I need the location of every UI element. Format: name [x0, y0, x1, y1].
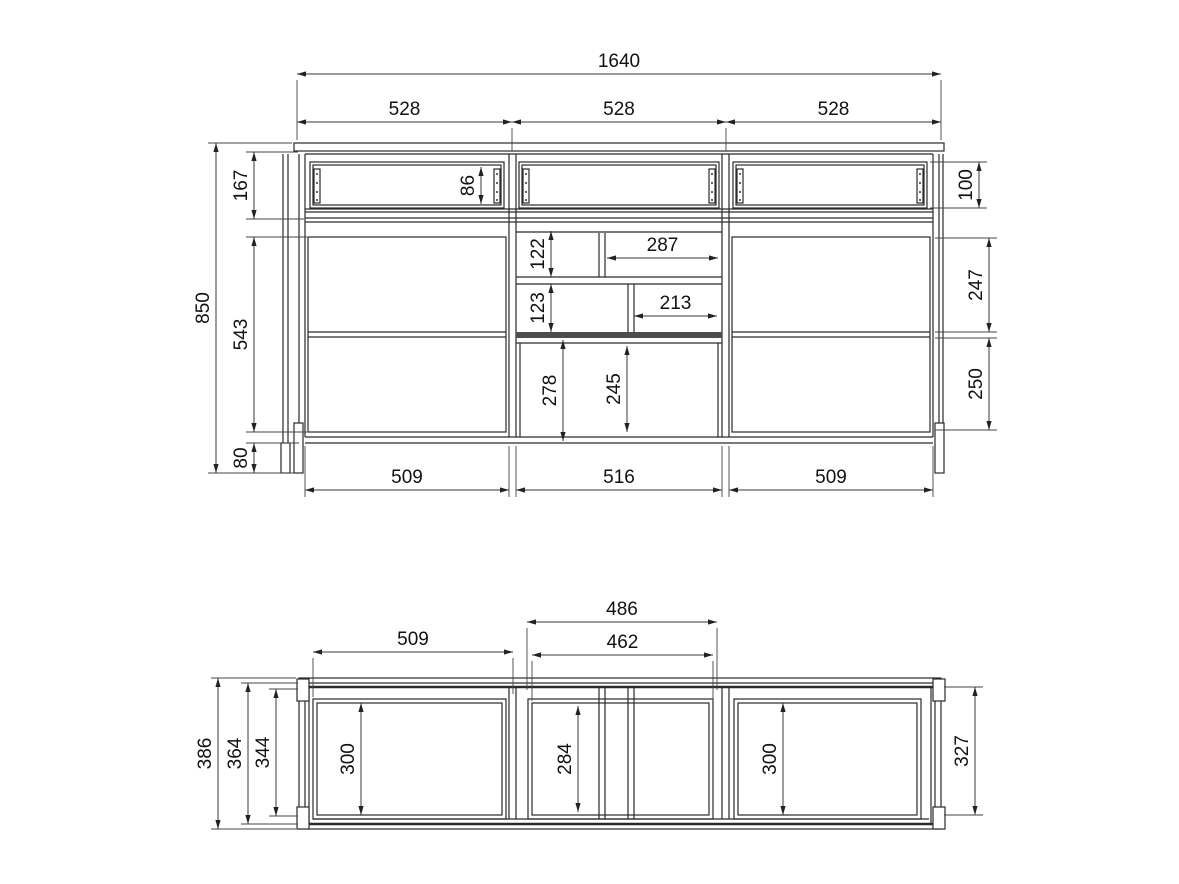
arrowhead: [512, 119, 521, 124]
dimension-label: 543: [231, 319, 252, 351]
arrowhead: [213, 143, 218, 152]
dim-386: 386: [195, 678, 221, 829]
arrowhead: [273, 689, 278, 698]
shelf-edge-band: [516, 332, 722, 338]
arrowhead: [708, 619, 717, 624]
dim-509: 509: [305, 467, 509, 493]
dimension-label: 850: [193, 292, 214, 324]
dimension-label: 327: [952, 735, 973, 767]
drawer-front-right: [733, 162, 927, 208]
arrowhead: [245, 815, 250, 824]
plan-view: [297, 678, 945, 829]
dimension-label: 284: [555, 743, 576, 775]
arrowhead: [532, 652, 541, 657]
dimension-label: 245: [604, 373, 625, 405]
door-right: [732, 237, 930, 432]
dim-528: 528: [512, 99, 726, 125]
arrowhead: [548, 323, 553, 332]
leg-top-left: [297, 679, 309, 701]
dim-1640: 1640: [297, 51, 941, 77]
leg-bottom-left: [297, 807, 309, 829]
furniture-technical-drawing: 1640528528528850167543808610024725012228…: [0, 0, 1179, 884]
dimension-label: 86: [458, 175, 479, 196]
arrowhead: [704, 652, 713, 657]
arrowhead: [500, 487, 509, 492]
dimension-label: 278: [540, 375, 561, 407]
dimension-label: 462: [607, 632, 639, 653]
dimension-label: 250: [966, 368, 987, 400]
arrowhead: [932, 119, 941, 124]
dimension-label: 509: [815, 467, 847, 488]
arrowhead: [548, 268, 553, 277]
arrowhead: [726, 119, 735, 124]
dim-364: 364: [225, 683, 251, 824]
arrowhead: [273, 807, 278, 816]
dimension-label: 213: [660, 293, 692, 314]
arrowhead: [305, 487, 314, 492]
dim-462: 462: [532, 632, 713, 658]
dimension-label: 287: [647, 235, 679, 256]
dimension-label: 528: [389, 99, 421, 120]
arrowhead: [986, 421, 991, 430]
arrowhead: [516, 487, 525, 492]
arrowhead: [924, 487, 933, 492]
dim-80: 80: [231, 443, 257, 473]
dim-516: 516: [516, 467, 722, 493]
arrowhead: [251, 210, 256, 219]
arrowhead: [245, 683, 250, 692]
arrowhead: [504, 649, 513, 654]
dimension-label: 364: [225, 737, 246, 769]
arrowhead: [607, 255, 616, 260]
arrowhead: [251, 423, 256, 432]
dimension-label: 1640: [598, 51, 640, 72]
top-board: [294, 143, 944, 151]
arrowhead: [729, 487, 738, 492]
dimension-label: 486: [606, 599, 638, 620]
leg-bottom-right: [933, 807, 945, 829]
arrowhead: [297, 71, 306, 76]
arrowhead: [634, 313, 643, 318]
plan-outline: [299, 678, 941, 829]
arrowhead: [251, 443, 256, 452]
drawing-sheet: 1640528528528850167543808610024725012228…: [0, 0, 1179, 884]
dim-509: 509: [729, 467, 933, 493]
arrowhead: [251, 464, 256, 473]
dimension-label: 123: [528, 292, 549, 324]
dimension-label: 300: [760, 743, 781, 775]
dimension-label: 528: [818, 99, 850, 120]
dimension-label: 300: [338, 743, 359, 775]
leg-top-right: [933, 679, 945, 701]
front-leg-right: [935, 423, 944, 473]
arrowhead: [527, 619, 536, 624]
dim-213: 213: [634, 293, 717, 319]
dim-250: 250: [966, 338, 992, 430]
arrowhead: [503, 119, 512, 124]
dim-287: 287: [607, 235, 718, 261]
dim-245: 245: [604, 346, 630, 432]
arrowhead: [213, 464, 218, 473]
dimension-label: 80: [231, 447, 252, 468]
arrowhead: [717, 119, 726, 124]
dimension-label: 509: [391, 467, 423, 488]
door-left: [308, 237, 506, 432]
dimension-label: 247: [966, 269, 987, 301]
dimension-label: 100: [956, 169, 977, 201]
arrowhead: [251, 237, 256, 246]
arrowhead: [624, 346, 629, 355]
dimension-label: 509: [397, 629, 429, 650]
arrowhead: [932, 71, 941, 76]
dim-344: 344: [253, 689, 279, 816]
arrowhead: [215, 820, 220, 829]
arrowhead: [986, 238, 991, 247]
dimension-label: 167: [231, 170, 252, 202]
arrowhead: [297, 119, 306, 124]
arrowhead: [548, 284, 553, 293]
back-leg-left: [281, 443, 290, 473]
arrowhead: [624, 423, 629, 432]
dim-247: 247: [966, 238, 992, 332]
dimension-label: 122: [528, 238, 549, 270]
dimension-label: 344: [253, 736, 274, 768]
dim-509: 509: [313, 629, 513, 655]
dim-100: 100: [956, 162, 982, 208]
drawer-front-middle: [519, 162, 719, 208]
dimension-label: 386: [195, 738, 216, 770]
arrowhead: [972, 687, 977, 696]
dim-167: 167: [231, 152, 257, 219]
dim-486: 486: [527, 599, 717, 625]
dim-122: 122: [528, 231, 554, 277]
arrowhead: [708, 313, 717, 318]
arrowhead: [215, 678, 220, 687]
dim-327: 327: [952, 687, 978, 815]
dim-850: 850: [193, 143, 219, 473]
arrowhead: [986, 338, 991, 347]
dim-123: 123: [528, 284, 554, 332]
arrowhead: [709, 255, 718, 260]
arrowhead: [976, 162, 981, 171]
dim-528: 528: [297, 99, 512, 125]
dimension-label: 528: [603, 99, 635, 120]
dim-543: 543: [231, 237, 257, 432]
front-elevation-view: [281, 143, 944, 473]
front-leg-left: [294, 423, 303, 473]
dimension-label: 516: [603, 467, 635, 488]
arrowhead: [976, 199, 981, 208]
dim-278: 278: [540, 340, 566, 441]
arrowhead: [560, 340, 565, 349]
arrowhead: [972, 806, 977, 815]
arrowhead: [251, 152, 256, 161]
dim-528: 528: [726, 99, 941, 125]
arrowhead: [713, 487, 722, 492]
arrowhead: [986, 323, 991, 332]
arrowhead: [313, 649, 322, 654]
